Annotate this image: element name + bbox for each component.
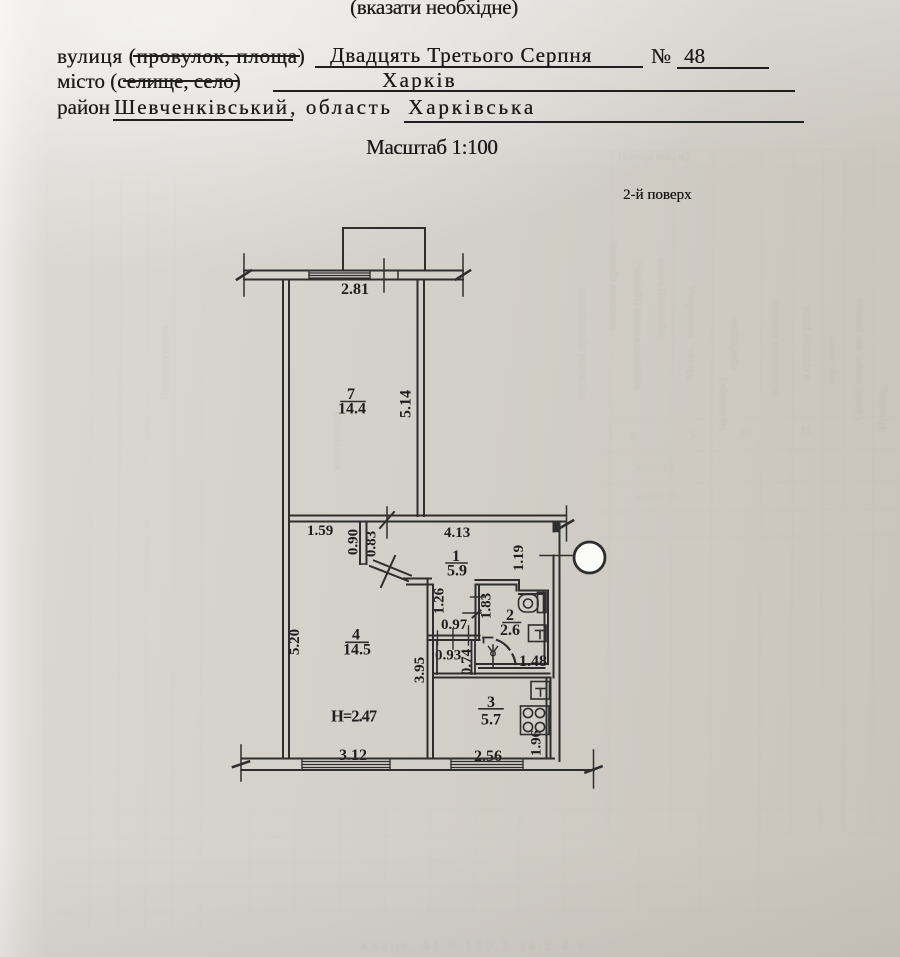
svg-text:5.9: 5.9 bbox=[447, 563, 467, 580]
svg-text:1.19: 1.19 bbox=[511, 545, 527, 571]
svg-text:4.13: 4.13 bbox=[444, 525, 470, 541]
svg-text:0.74: 0.74 bbox=[459, 648, 475, 675]
svg-text:2.56: 2.56 bbox=[474, 748, 502, 765]
svg-text:5.7: 5.7 bbox=[481, 712, 501, 729]
svg-text:2.6: 2.6 bbox=[500, 622, 520, 639]
svg-text:5.14: 5.14 bbox=[398, 390, 415, 418]
svg-text:0.97: 0.97 bbox=[441, 617, 468, 633]
svg-text:1.83: 1.83 bbox=[478, 593, 494, 619]
svg-text:1.26: 1.26 bbox=[431, 587, 447, 614]
svg-text:1.48: 1.48 bbox=[519, 653, 547, 670]
svg-text:1.96: 1.96 bbox=[528, 729, 544, 756]
svg-text:3.95: 3.95 bbox=[412, 657, 428, 683]
svg-text:14.5: 14.5 bbox=[343, 642, 371, 659]
svg-text:0.93: 0.93 bbox=[435, 648, 461, 664]
svg-text:1.59: 1.59 bbox=[307, 523, 333, 539]
svg-text:2.81: 2.81 bbox=[341, 281, 369, 298]
svg-text:H=2.47: H=2.47 bbox=[331, 707, 377, 726]
svg-text:14.4: 14.4 bbox=[338, 401, 366, 418]
svg-text:5.20: 5.20 bbox=[287, 629, 303, 655]
